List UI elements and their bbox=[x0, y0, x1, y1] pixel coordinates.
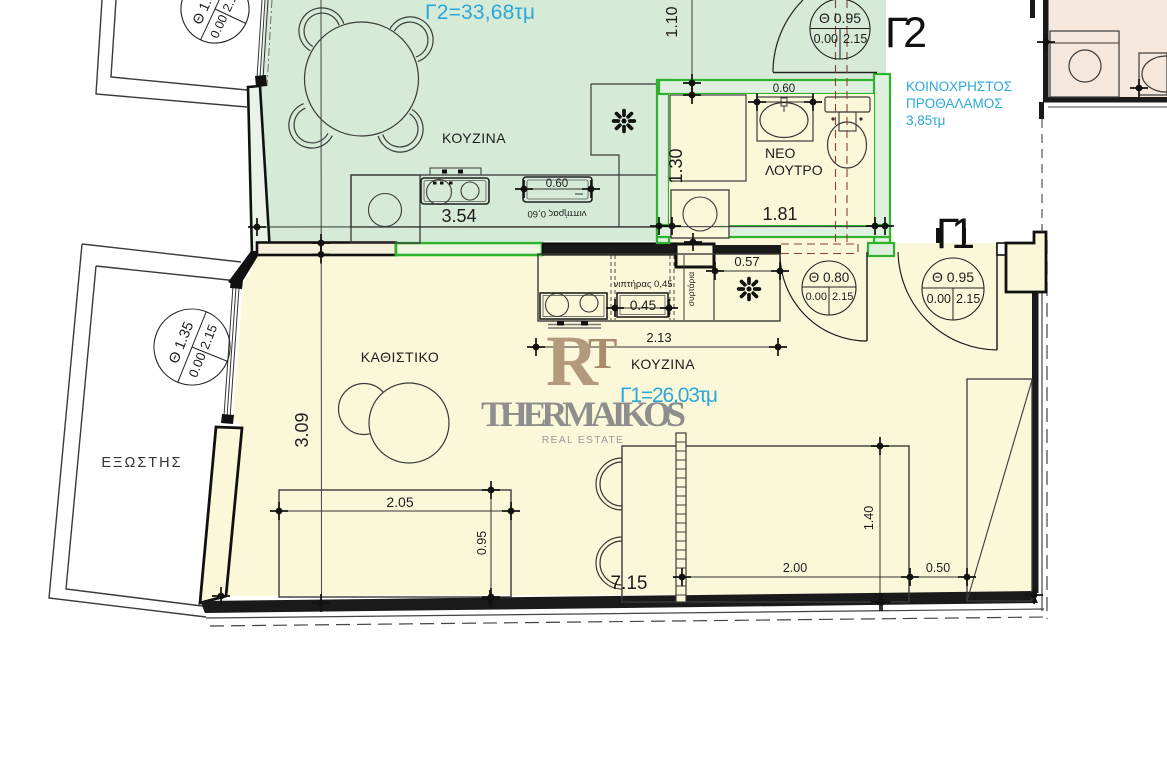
svg-text:REAL ESTATE: REAL ESTATE bbox=[542, 434, 624, 446]
svg-text:ΕΞΩΣΤΗΣ: ΕΞΩΣΤΗΣ bbox=[101, 455, 182, 471]
svg-text:2.05: 2.05 bbox=[386, 494, 413, 510]
svg-text:ΝΕΟ: ΝΕΟ bbox=[765, 145, 795, 161]
svg-text:ΚΟΥΖΙΝΑ: ΚΟΥΖΙΝΑ bbox=[631, 356, 695, 372]
svg-text:0.00: 0.00 bbox=[814, 32, 838, 46]
svg-text:ΠΡΟΘΑΛΑΜΟΣ: ΠΡΟΘΑΛΑΜΟΣ bbox=[906, 96, 1003, 111]
svg-text:0.50: 0.50 bbox=[926, 561, 950, 575]
svg-text:7.15: 7.15 bbox=[611, 573, 648, 594]
svg-text:Θ 0.80: Θ 0.80 bbox=[809, 270, 850, 285]
svg-text:Γ2=33,68τμ: Γ2=33,68τμ bbox=[425, 1, 535, 24]
svg-text:Γ1=26,03τμ: Γ1=26,03τμ bbox=[620, 384, 718, 407]
svg-text:2.15: 2.15 bbox=[832, 291, 853, 303]
svg-text:ΚΑΘΙΣΤΙΚΟ: ΚΑΘΙΣΤΙΚΟ bbox=[361, 349, 440, 365]
svg-text:νιπτήρας 0,60: νιπτήρας 0,60 bbox=[527, 208, 586, 219]
svg-text:0.57: 0.57 bbox=[734, 254, 759, 269]
svg-text:Γ1: Γ1 bbox=[936, 210, 975, 258]
svg-text:2.15: 2.15 bbox=[843, 32, 867, 46]
svg-text:3,85τμ: 3,85τμ bbox=[906, 113, 945, 128]
svg-text:0.60: 0.60 bbox=[546, 178, 568, 190]
svg-text:2.13: 2.13 bbox=[646, 330, 671, 345]
svg-text:1.81: 1.81 bbox=[762, 204, 797, 224]
svg-text:Γ2: Γ2 bbox=[885, 9, 927, 57]
svg-text:0.60: 0.60 bbox=[773, 83, 795, 95]
svg-text:0.45: 0.45 bbox=[630, 298, 656, 313]
svg-text:2.15: 2.15 bbox=[956, 292, 980, 306]
svg-text:T: T bbox=[588, 329, 617, 378]
svg-text:2.15: 2.15 bbox=[220, 0, 243, 14]
svg-text:3.09: 3.09 bbox=[292, 412, 312, 447]
svg-text:0.00: 0.00 bbox=[806, 291, 827, 303]
svg-text:νιπτήρας 0,45: νιπτήρας 0,45 bbox=[613, 279, 672, 290]
svg-text:Θ 0.95: Θ 0.95 bbox=[819, 10, 861, 26]
svg-text:ΛΟΥΤΡΟ: ΛΟΥΤΡΟ bbox=[765, 162, 823, 178]
svg-text:1.40: 1.40 bbox=[862, 506, 876, 530]
svg-text:2.00: 2.00 bbox=[783, 561, 807, 575]
svg-text:1.30: 1.30 bbox=[666, 148, 686, 183]
svg-text:Θ 0.95: Θ 0.95 bbox=[932, 269, 974, 285]
svg-text:συρτάρια: συρτάρια bbox=[686, 272, 696, 306]
svg-text:ΚΟΙΝΟΧΡΗΣΤΟΣ: ΚΟΙΝΟΧΡΗΣΤΟΣ bbox=[906, 79, 1012, 94]
svg-text:0.95: 0.95 bbox=[475, 531, 489, 555]
svg-text:1.10: 1.10 bbox=[664, 6, 681, 37]
svg-text:ΚΟΥΖΙΝΑ: ΚΟΥΖΙΝΑ bbox=[442, 130, 506, 146]
svg-text:3.54: 3.54 bbox=[441, 206, 476, 226]
svg-text:0.00: 0.00 bbox=[927, 292, 951, 306]
